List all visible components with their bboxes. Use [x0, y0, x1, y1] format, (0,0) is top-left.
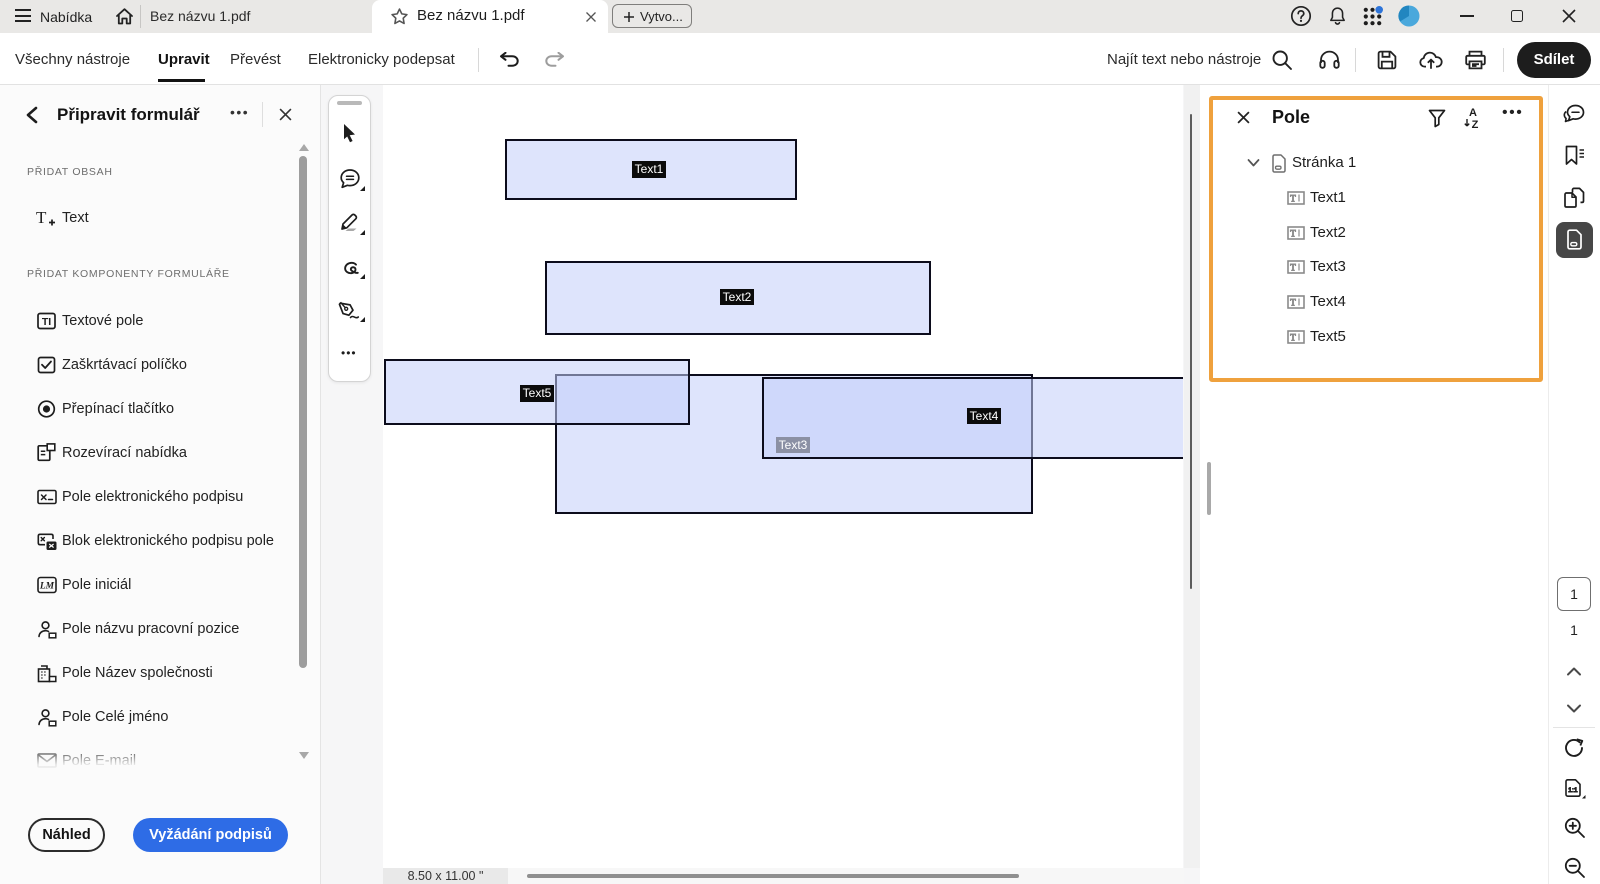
svg-text:T: T: [1290, 194, 1296, 204]
svg-text:A: A: [1469, 107, 1477, 119]
svg-text:1:1: 1:1: [1568, 787, 1578, 794]
svg-text:T: T: [1290, 263, 1296, 273]
svg-text:T: T: [1290, 229, 1296, 239]
svg-text:TI: TI: [42, 316, 51, 328]
svg-text:T: T: [1290, 333, 1296, 343]
svg-text:Z: Z: [1472, 119, 1479, 130]
svg-text:T: T: [36, 208, 47, 227]
svg-text:LM: LM: [39, 582, 55, 592]
svg-text:T: T: [1290, 298, 1296, 308]
